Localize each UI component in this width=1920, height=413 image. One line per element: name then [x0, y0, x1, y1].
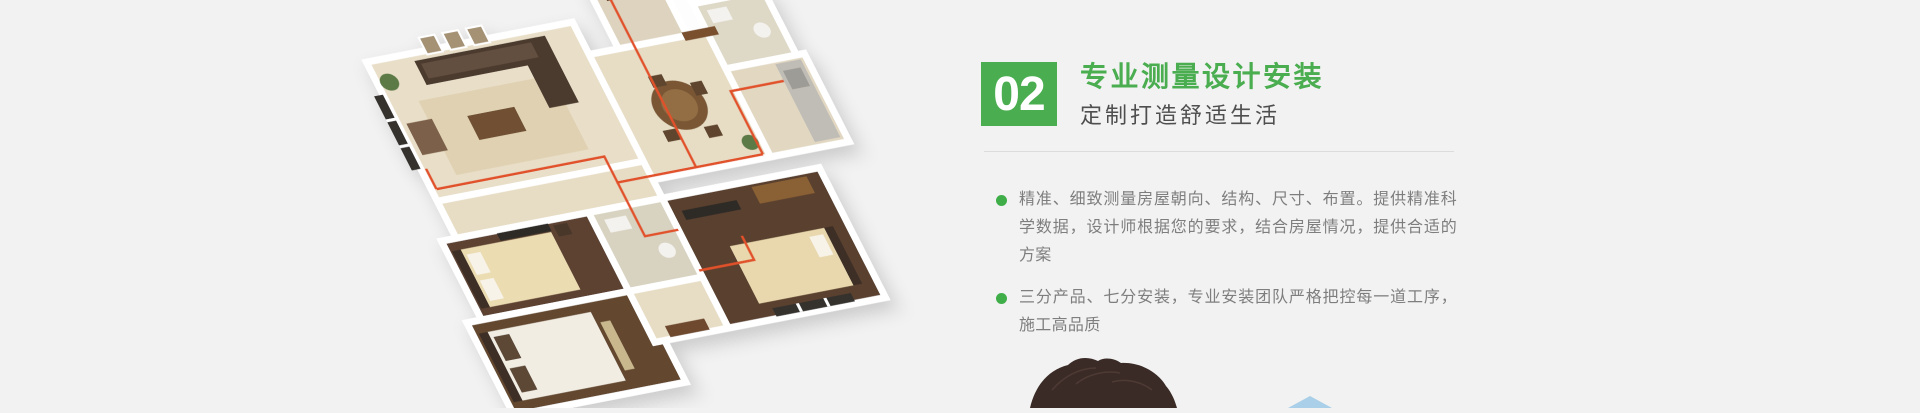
feature-point: 三分产品、七分安装，专业安装团队严格把控每一道工序，施工高品质: [984, 284, 1457, 340]
feature-point-text: 精准、细致测量房屋朝向、结构、尺寸、布置。提供精准科学数据，设计师根据您的要求，…: [1019, 191, 1457, 264]
section-titles: 专业测量设计安装 定制打造舒适生活: [1080, 60, 1324, 129]
person-hair-shape: [1022, 356, 1182, 408]
bullet-dot-icon: [996, 293, 1007, 304]
section-title: 专业测量设计安装: [1080, 60, 1324, 94]
blue-triangle-decoration: [1288, 396, 1332, 408]
floorplan-illustration: [0, 0, 960, 408]
feature-point-text: 三分产品、七分安装，专业安装团队严格把控每一道工序，施工高品质: [1019, 289, 1457, 334]
bullet-dot-icon: [996, 195, 1007, 206]
step-number-badge: 02: [981, 62, 1057, 126]
person-photo-top: [1022, 356, 1182, 408]
divider: [984, 151, 1454, 152]
floorplan-svg: [0, 0, 960, 408]
section-subtitle: 定制打造舒适生活: [1080, 103, 1324, 129]
feature-point: 精准、细致测量房屋朝向、结构、尺寸、布置。提供精准科学数据，设计师根据您的要求，…: [984, 186, 1457, 270]
section-02-measure-design-install: 02 专业测量设计安装 定制打造舒适生活 精准、细致测量房屋朝向、结构、尺寸、布…: [0, 0, 1920, 408]
feature-points: 精准、细致测量房屋朝向、结构、尺寸、布置。提供精准科学数据，设计师根据您的要求，…: [984, 186, 1464, 354]
